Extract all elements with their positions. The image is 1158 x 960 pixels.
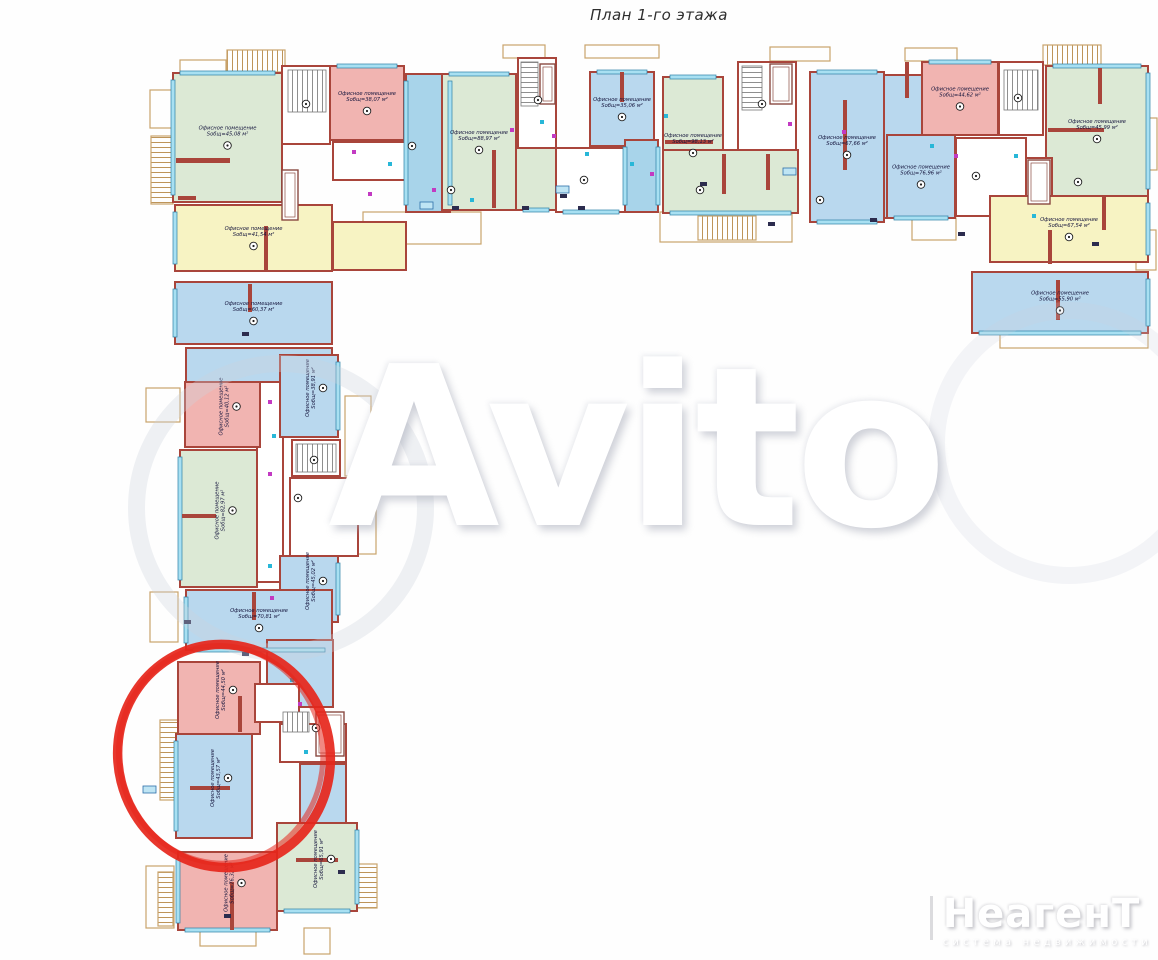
marker-dot — [322, 387, 324, 389]
sanitary-fixture — [290, 678, 294, 682]
room-gw1 — [180, 450, 257, 587]
marker-dot — [959, 105, 961, 107]
marker-dot — [583, 179, 585, 181]
wall-stub — [665, 140, 713, 144]
sanitary-fixture — [268, 400, 272, 404]
sanitary-fixture — [630, 162, 634, 166]
room-label: Офисное помещениеSобщ=44,62 м² — [931, 87, 989, 99]
sanitary-fixture — [304, 750, 308, 754]
marker-dot — [305, 103, 307, 105]
porch-outline — [200, 930, 256, 946]
porch-outline — [698, 216, 756, 240]
marker-dot — [240, 882, 242, 884]
window-strip — [173, 212, 177, 264]
marker-dot — [366, 110, 368, 112]
window-strip — [337, 64, 397, 68]
porch-outline — [160, 720, 182, 800]
dimension-tag — [578, 206, 585, 210]
room-wc2 — [255, 684, 299, 722]
wall-stub — [492, 150, 496, 208]
window-strip — [656, 147, 660, 205]
sanitary-fixture — [1014, 154, 1018, 158]
marker-dot — [315, 727, 317, 729]
room-number-marker — [816, 196, 824, 204]
neagent-brand: НеагенТ — [943, 894, 1152, 934]
room-pw3 — [178, 852, 277, 930]
room-number-marker — [319, 577, 327, 585]
window-strip — [1146, 203, 1150, 255]
wall-stub — [178, 196, 196, 200]
porch-outline — [1136, 230, 1156, 270]
sanitary-fixture — [270, 596, 274, 600]
room-y1 — [175, 205, 332, 271]
sanitary-fixture — [298, 702, 302, 706]
marker-dot — [297, 497, 299, 499]
window-strip — [523, 208, 549, 212]
wall-stub — [248, 284, 252, 312]
room-b5 — [972, 272, 1148, 333]
room-label: Офисное помещениеSобщ=98,13 м² — [664, 133, 722, 145]
room-gw2 — [277, 823, 357, 911]
sanitary-fixture — [552, 134, 556, 138]
porch-outline — [146, 388, 180, 422]
window-strip — [404, 81, 408, 205]
room-number-marker — [956, 103, 964, 111]
room-label: Офисное помещениеSобщ=38,91 м² — [305, 359, 317, 417]
wall-stub — [766, 154, 770, 190]
window-strip — [184, 597, 188, 643]
wall-stub — [176, 158, 230, 163]
room-label: Офисное помещениеSобщ=41,54 м² — [225, 226, 283, 238]
wall-stub — [1056, 280, 1060, 320]
porch-outline — [357, 864, 377, 908]
room-label: Офисное помещениеSобщ=67,54 м² — [1040, 217, 1098, 229]
marker-dot — [699, 189, 701, 191]
room-label: Офисное помещениеSобщ=43,57 м² — [210, 749, 222, 807]
room-y2 — [990, 196, 1148, 262]
window-strip — [1146, 73, 1150, 189]
room-number-marker — [475, 146, 483, 154]
stairs — [296, 444, 336, 472]
sanitary-fixture — [268, 472, 272, 476]
room-label: Офисное помещениеSобщ=38,07 м² — [338, 91, 396, 103]
porch-outline — [304, 928, 330, 954]
wall-stub — [620, 72, 624, 102]
elevator-shaft — [770, 64, 792, 104]
red-circle-annotation-stroke2 — [105, 632, 337, 876]
wall-stub — [238, 696, 242, 732]
room-g3b — [663, 150, 798, 213]
wall-stub — [296, 858, 338, 862]
window-strip — [623, 147, 627, 205]
marker-dot — [411, 145, 413, 147]
dimension-tag — [242, 652, 249, 656]
window-strip — [449, 72, 509, 76]
window-strip — [173, 289, 177, 337]
window-strip — [180, 71, 275, 75]
window-tag — [143, 786, 156, 793]
room-label: Офисное помещениеSобщ=65,91 м² — [313, 830, 325, 888]
wall-stub — [190, 786, 230, 790]
room-bw1 — [175, 282, 332, 344]
marker-dot — [450, 189, 452, 191]
room-corew1 — [292, 440, 340, 476]
marker-dot — [975, 175, 977, 177]
stairs — [1004, 70, 1038, 110]
room-label: Офисное помещениеSобщ=76,32 м² — [224, 854, 236, 912]
marker-dot — [226, 144, 228, 146]
room-gal2 — [625, 140, 658, 212]
room-number-marker — [238, 879, 246, 887]
sanitary-fixture — [470, 198, 474, 202]
sanitary-fixture — [388, 162, 392, 166]
porch-outline — [1043, 45, 1101, 65]
room-number-marker — [224, 774, 232, 782]
window-strip — [817, 220, 877, 224]
porch-outline — [345, 396, 371, 476]
window-tag — [420, 202, 433, 209]
room-number-marker — [229, 507, 237, 515]
dimension-tag — [768, 222, 775, 226]
elevator-cab — [285, 173, 295, 217]
window-strip — [284, 909, 350, 913]
dimension-tag — [184, 620, 191, 624]
window-strip — [176, 859, 180, 923]
dimension-tag — [338, 870, 345, 874]
dimension-tag — [870, 218, 877, 222]
room-number-marker — [310, 456, 318, 464]
elevator-shaft — [1028, 160, 1050, 204]
room-label: Офисное помещениеSобщ=60,37 м² — [225, 301, 283, 313]
room-g2 — [442, 74, 516, 210]
watermark-circle-right — [928, 302, 1158, 584]
porch-outline — [146, 866, 174, 928]
wall-stub — [843, 100, 847, 170]
room-number-marker — [917, 181, 925, 189]
window-strip — [174, 741, 178, 831]
room-number-marker — [319, 384, 327, 392]
porch-outline — [363, 212, 481, 244]
room-gal1 — [406, 74, 450, 212]
wall-stub — [264, 226, 268, 270]
window-strip — [178, 457, 182, 580]
porch-outline — [340, 490, 376, 554]
room-number-marker — [1014, 94, 1022, 102]
elevator-cab — [1031, 163, 1047, 201]
room-label: Офисное помещениеSобщ=67,66 м² — [818, 135, 876, 147]
window-strip — [171, 80, 175, 195]
room-label: Офисное помещениеSобщ=44,50 м² — [215, 661, 227, 719]
room-core4 — [999, 62, 1043, 135]
wall-stub — [230, 882, 234, 930]
sanitary-fixture — [1032, 214, 1036, 218]
room-pw2 — [178, 662, 260, 734]
marker-dot — [1077, 181, 1079, 183]
elevator-cab — [543, 67, 552, 101]
room-bw4 — [280, 556, 338, 622]
wall-stub — [722, 154, 726, 194]
marker-dot — [692, 152, 694, 154]
room-number-marker — [229, 686, 237, 694]
porch-outline — [660, 212, 792, 242]
marker-dot — [252, 245, 254, 247]
room-number-marker — [1074, 178, 1082, 186]
room-number-marker — [758, 100, 766, 108]
porch-outline — [1148, 118, 1157, 170]
window-strip — [193, 648, 325, 652]
room-wc1 — [333, 142, 405, 180]
sanitary-fixture — [842, 130, 846, 134]
room-b4a — [884, 75, 922, 218]
room-number-marker — [312, 724, 320, 732]
room-number-marker — [1093, 135, 1101, 143]
room-w4 — [956, 138, 1026, 216]
porch-outline — [150, 90, 180, 128]
dimension-tag — [560, 194, 567, 198]
elevator-cab — [773, 67, 789, 101]
sanitary-fixture — [272, 434, 276, 438]
room-number-marker — [224, 142, 232, 150]
room-bw2 — [186, 348, 332, 382]
avito-watermark-text: Avito — [328, 338, 941, 560]
window-strip — [979, 331, 1141, 335]
room-y1b — [333, 222, 406, 270]
porch-outline — [912, 218, 956, 240]
marker-dot — [846, 154, 848, 156]
room-bw7 — [267, 640, 333, 707]
room-g4 — [1046, 66, 1148, 196]
window-strip — [1146, 279, 1150, 326]
room-colw — [257, 382, 283, 582]
room-number-marker — [972, 172, 980, 180]
porch-outline — [905, 48, 957, 61]
window-strip — [817, 70, 877, 74]
window-strip — [597, 70, 647, 74]
room-label: Офисное помещениеSобщ=76,96 м² — [892, 165, 950, 177]
room-label: Офисное помещениеSобщ=88,97 м² — [450, 130, 508, 142]
room-label: Офисное помещениеSобщ=45,99 м² — [1068, 119, 1126, 131]
marker-dot — [1059, 309, 1061, 311]
marker-dot — [621, 116, 623, 118]
dimension-tag — [242, 332, 249, 336]
room-g1 — [173, 73, 282, 202]
marker-dot — [322, 580, 324, 582]
sanitary-fixture — [368, 192, 372, 196]
dimension-tag — [452, 206, 459, 210]
porch-outline — [1000, 333, 1148, 348]
dimension-tag — [224, 914, 231, 918]
stairs — [288, 70, 326, 112]
avito-watermark: Avito — [0, 0, 1158, 960]
sanitary-fixture — [268, 564, 272, 568]
porch-outline — [227, 50, 285, 72]
room-bw8 — [300, 764, 346, 840]
room-core2 — [518, 58, 556, 148]
room-number-marker — [250, 317, 258, 325]
elevator-shaft — [540, 64, 555, 104]
sanitary-fixture — [954, 154, 958, 158]
dimension-tag — [1092, 242, 1099, 246]
wall-stub — [182, 514, 216, 518]
elevator-shaft — [316, 712, 344, 756]
window-strip — [355, 830, 359, 904]
porch-outline — [503, 45, 545, 58]
neagent-subtitle: система недвижимости — [943, 937, 1152, 948]
dimension-tag — [700, 182, 707, 186]
room-number-marker — [250, 242, 258, 250]
plan-title: План 1-го этажа — [590, 6, 728, 24]
room-b2 — [590, 72, 654, 146]
sanitary-fixture — [540, 120, 544, 124]
room-number-marker — [447, 186, 455, 194]
room-bw5 — [186, 590, 332, 650]
annotation-layer — [0, 0, 1158, 960]
room-ww1 — [290, 478, 358, 556]
dimension-tag — [958, 232, 965, 236]
room-number-marker — [580, 176, 588, 184]
window-strip — [670, 75, 716, 79]
window-strip — [185, 928, 270, 932]
stairs — [742, 66, 762, 110]
sanitary-fixture — [585, 152, 589, 156]
marker-dot — [232, 689, 234, 691]
marker-dot — [819, 199, 821, 201]
room-label: Офисное помещениеSобщ=55,90 м² — [1031, 291, 1089, 303]
porch-outline — [770, 47, 830, 61]
room-b4 — [887, 135, 955, 218]
room-corew2 — [280, 724, 346, 762]
sanitary-fixture — [352, 150, 356, 154]
room-g3 — [663, 77, 723, 213]
room-label: Офисное помещениеSобщ=70,81 м² — [230, 608, 288, 620]
neagent-logo: НеагенТ система недвижимости — [930, 894, 1152, 948]
marker-dot — [252, 320, 254, 322]
room-g2b — [516, 148, 556, 210]
room-number-marker — [1056, 307, 1064, 315]
marker-dot — [313, 459, 315, 461]
room-number-marker — [1065, 233, 1073, 241]
floorplan-page: План 1-го этажа Офисное помещениеSобщ=45… — [0, 0, 1158, 960]
room-number-marker — [294, 494, 302, 502]
marker-dot — [231, 509, 233, 511]
porch-outline — [180, 60, 226, 72]
porch-outline — [151, 136, 173, 204]
wall-stub — [1102, 196, 1106, 230]
room-b3 — [810, 72, 884, 222]
window-strip — [929, 60, 991, 64]
marker-dot — [1096, 138, 1098, 140]
watermark-circle-left — [128, 355, 434, 661]
room-number-marker — [689, 149, 697, 157]
red-circle-annotation — [94, 622, 354, 891]
room-label: Офисное помещениеSобщ=45,02 м² — [305, 552, 317, 610]
room-core3 — [738, 62, 796, 150]
marker-dot — [537, 99, 539, 101]
room-label: Офисное помещениеSобщ=40,12 м² — [219, 378, 231, 436]
marker-dot — [761, 103, 763, 105]
elevator-shaft — [282, 170, 298, 220]
room-p1 — [330, 66, 404, 140]
marker-dot — [330, 858, 332, 860]
dimension-tag — [522, 206, 529, 210]
sanitary-fixture — [650, 172, 654, 176]
window-strip — [336, 563, 340, 615]
logo-divider — [930, 896, 933, 940]
room-label: Офисное помещениеSобщ=35,06 м² — [593, 97, 651, 109]
wall-stub — [1098, 68, 1102, 104]
wall-stub — [1048, 230, 1052, 264]
marker-dot — [1068, 236, 1070, 238]
window-strip — [336, 362, 340, 430]
marker-dot — [235, 405, 237, 407]
porch-outline — [585, 45, 659, 58]
room-number-marker — [327, 855, 335, 863]
wall-stub — [905, 62, 909, 98]
room-label: Офисное помещениеSобщ=45,08 м² — [199, 126, 257, 138]
room-number-marker — [534, 96, 542, 104]
room-p2 — [922, 62, 998, 135]
sanitary-fixture — [432, 188, 436, 192]
room-core4b — [1026, 158, 1052, 208]
window-tag — [783, 168, 796, 175]
window-tag — [556, 186, 569, 193]
wall-stub — [1048, 128, 1104, 132]
window-strip — [894, 216, 948, 220]
room-h2 — [556, 148, 626, 212]
stairs — [521, 62, 538, 106]
room-pw1 — [185, 382, 260, 447]
room-number-marker — [302, 100, 310, 108]
room-number-marker — [255, 624, 263, 632]
marker-dot — [920, 183, 922, 185]
room-label: Офисное помещениеSобщ=82,97 м² — [215, 482, 227, 540]
room-number-marker — [408, 142, 416, 150]
room-number-marker — [618, 113, 626, 121]
room-number-marker — [843, 151, 851, 159]
room-core1 — [282, 66, 330, 144]
porch-outline — [150, 592, 178, 642]
marker-dot — [1017, 97, 1019, 99]
marker-dot — [478, 149, 480, 151]
window-strip — [670, 211, 791, 215]
wall-stub — [252, 592, 256, 620]
sanitary-fixture — [930, 144, 934, 148]
room-bw6 — [176, 734, 252, 838]
elevator-cab — [319, 715, 341, 753]
stairs — [283, 712, 309, 732]
room-number-marker — [233, 403, 241, 411]
window-strip — [448, 81, 452, 205]
porch-outline — [158, 872, 173, 926]
sanitary-fixture — [510, 128, 514, 132]
marker-dot — [227, 777, 229, 779]
sanitary-fixture — [788, 122, 792, 126]
room-number-marker — [363, 107, 371, 115]
room-bw3 — [280, 355, 338, 437]
window-strip — [563, 210, 619, 214]
window-strip — [1053, 64, 1141, 68]
floorplan-drawing: Офисное помещениеSобщ=45,08 м²Офисное по… — [0, 0, 1158, 960]
marker-dot — [258, 627, 260, 629]
sanitary-fixture — [664, 114, 668, 118]
room-number-marker — [696, 186, 704, 194]
